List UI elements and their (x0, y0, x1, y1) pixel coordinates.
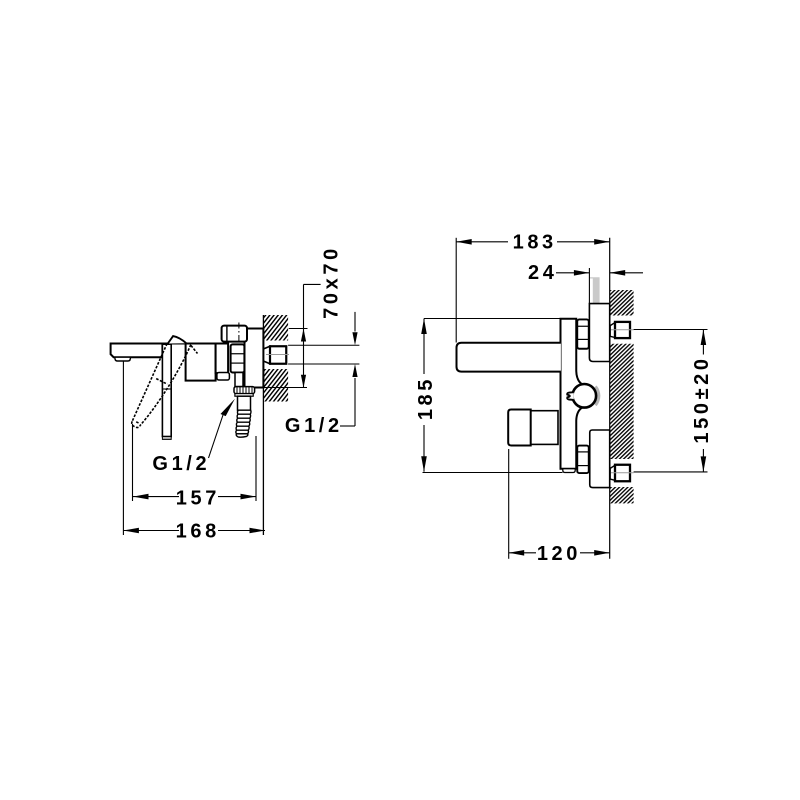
svg-text:G1/2: G1/2 (285, 415, 343, 437)
svg-text:157: 157 (176, 488, 220, 510)
svg-text:168: 168 (176, 521, 220, 543)
svg-text:24: 24 (528, 262, 557, 284)
svg-text:70x70: 70x70 (321, 245, 343, 319)
svg-text:183: 183 (513, 232, 557, 254)
svg-text:120: 120 (537, 543, 581, 565)
svg-text:G1/2: G1/2 (152, 453, 210, 475)
svg-text:150±20: 150±20 (691, 355, 713, 443)
svg-text:185: 185 (415, 376, 437, 420)
